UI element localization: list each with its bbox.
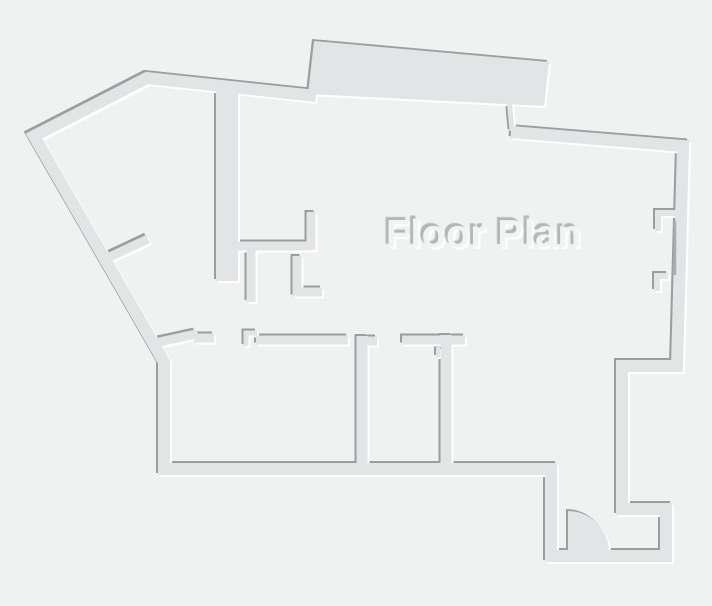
room1-door-jamb xyxy=(246,333,257,346)
room1-diagonal-wall xyxy=(150,334,196,344)
exterior-outline xyxy=(34,78,683,556)
closet-right-stub xyxy=(297,256,322,292)
floor-plan-canvas xyxy=(0,0,712,606)
top-slab xyxy=(308,41,549,106)
walls-group xyxy=(34,41,683,556)
entry-diagonal-stub xyxy=(101,239,148,261)
window-jamb-bottom xyxy=(657,276,668,291)
floor-plan-page: Floor Plan xyxy=(0,0,712,606)
door-swing xyxy=(568,511,609,552)
floor-plan-title: Floor Plan xyxy=(386,213,582,257)
